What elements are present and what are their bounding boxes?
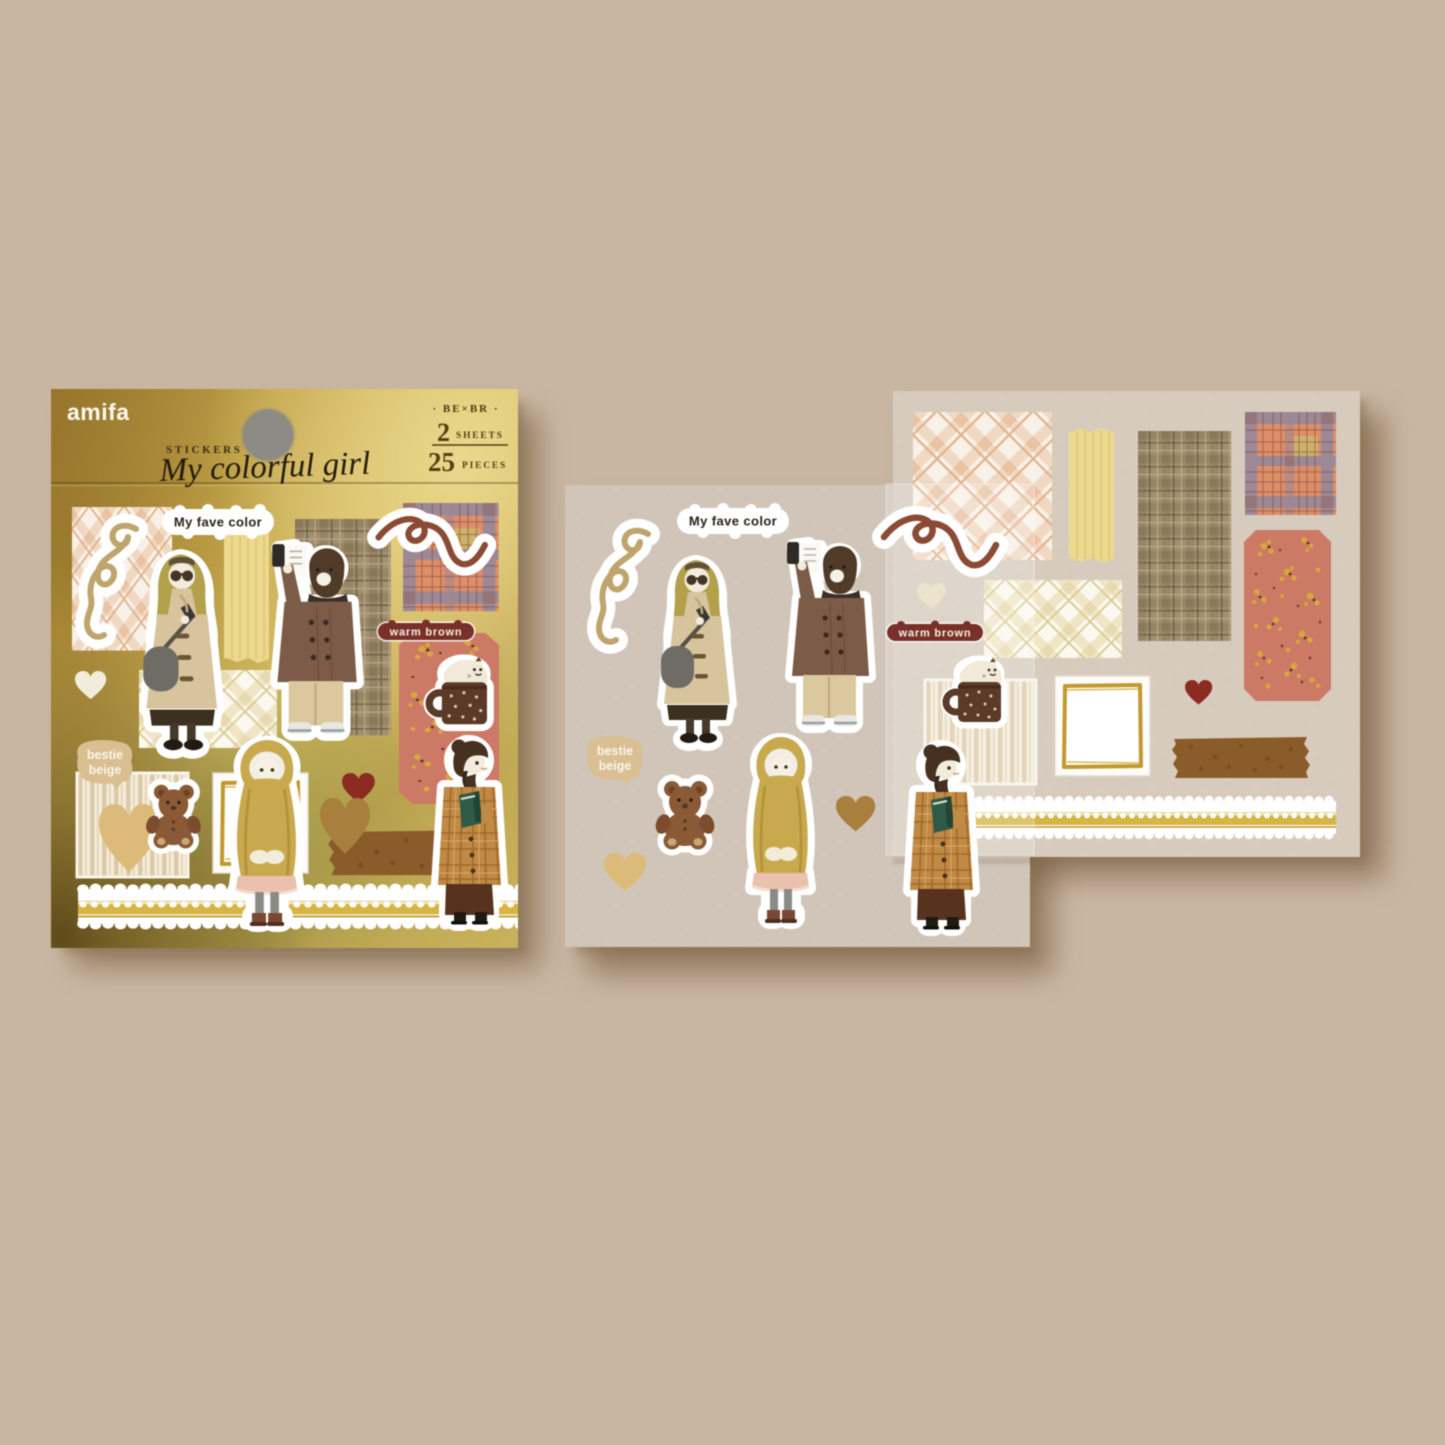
svg-text:amifa: amifa [67, 399, 130, 425]
svg-text:25: 25 [428, 447, 455, 477]
svg-text:PIECES: PIECES [462, 461, 507, 471]
svg-text:2: 2 [437, 418, 450, 447]
svg-text:· BE×BR ·: · BE×BR · [432, 403, 499, 415]
svg-text:My colorful girl: My colorful girl [158, 446, 371, 489]
svg-text:SHEETS: SHEETS [456, 431, 504, 441]
